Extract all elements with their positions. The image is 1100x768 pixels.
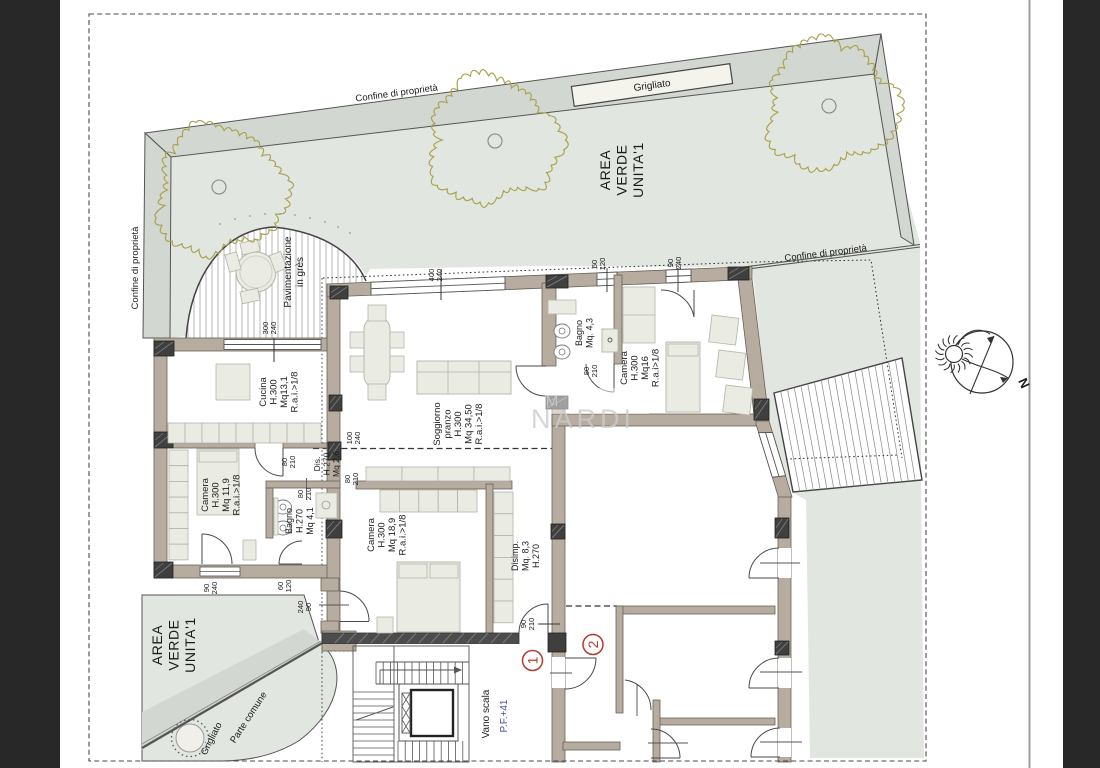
svg-text:VERDE: VERDE bbox=[166, 619, 182, 670]
svg-text:H.270: H.270 bbox=[295, 509, 305, 533]
svg-text:AREA: AREA bbox=[597, 150, 613, 191]
svg-text:Camera: Camera bbox=[200, 477, 211, 512]
svg-text:240: 240 bbox=[269, 322, 278, 335]
svg-text:210: 210 bbox=[527, 618, 536, 631]
svg-text:UNITA'1: UNITA'1 bbox=[630, 142, 646, 198]
svg-text:H.270: H.270 bbox=[531, 544, 541, 568]
svg-text:240: 240 bbox=[674, 257, 683, 270]
svg-text:Bagno: Bagno bbox=[284, 508, 294, 534]
svg-text:Camera: Camera bbox=[366, 517, 377, 552]
svg-text:AREA: AREA bbox=[149, 625, 165, 666]
svg-text:240: 240 bbox=[353, 432, 362, 445]
svg-text:1: 1 bbox=[525, 656, 541, 664]
svg-text:120: 120 bbox=[284, 580, 293, 593]
svg-text:H.270: H.270 bbox=[322, 452, 332, 475]
svg-text:H.300: H.300 bbox=[377, 522, 388, 547]
svg-text:R.a.i.>1/8: R.a.i.>1/8 bbox=[398, 515, 409, 556]
svg-text:Mq13,1: Mq13,1 bbox=[279, 376, 290, 408]
svg-text:R.a.i.>1/8: R.a.i.>1/8 bbox=[232, 475, 243, 516]
svg-text:90: 90 bbox=[304, 603, 313, 611]
svg-text:210: 210 bbox=[288, 456, 297, 469]
svg-text:Pavimentazione: Pavimentazione bbox=[283, 236, 294, 308]
svg-text:UNITA'1: UNITA'1 bbox=[182, 617, 198, 673]
svg-text:Cucina: Cucina bbox=[258, 377, 269, 407]
svg-text:H.300: H.300 bbox=[211, 482, 222, 507]
svg-text:Mq 11,9: Mq 11,9 bbox=[221, 478, 232, 512]
svg-text:R.a.i>1/8: R.a.i>1/8 bbox=[651, 349, 662, 387]
svg-text:120: 120 bbox=[598, 258, 607, 271]
svg-text:H.300: H.300 bbox=[453, 411, 464, 436]
svg-text:R.a.i.>1/8: R.a.i.>1/8 bbox=[290, 372, 301, 413]
svg-text:Mq. 4,3: Mq. 4,3 bbox=[585, 318, 595, 348]
svg-text:in grès: in grès bbox=[295, 257, 306, 287]
svg-text:210: 210 bbox=[304, 488, 313, 501]
svg-text:Camera: Camera bbox=[619, 350, 630, 385]
svg-text:Mq 4,1: Mq 4,1 bbox=[305, 507, 315, 535]
svg-text:2: 2 bbox=[585, 640, 601, 648]
svg-text:P.F.+41: P.F.+41 bbox=[499, 699, 510, 732]
svg-text:Mq16: Mq16 bbox=[640, 356, 651, 380]
svg-text:Soggiorno: Soggiorno bbox=[432, 402, 443, 445]
svg-text:Confine di proprietà: Confine di proprietà bbox=[130, 226, 141, 310]
svg-text:VERDE: VERDE bbox=[614, 144, 630, 195]
svg-text:210: 210 bbox=[590, 365, 599, 378]
svg-text:Vano scala: Vano scala bbox=[481, 689, 492, 738]
svg-text:R.a.i.>1/8: R.a.i.>1/8 bbox=[474, 404, 485, 445]
svg-text:240: 240 bbox=[210, 582, 219, 595]
svg-text:pranzo: pranzo bbox=[443, 409, 454, 438]
svg-text:H.300: H.300 bbox=[630, 355, 641, 380]
svg-text:Mq. 8,3: Mq. 8,3 bbox=[521, 541, 531, 571]
svg-text:Bagno: Bagno bbox=[574, 320, 584, 346]
svg-text:Mq 18,9: Mq 18,9 bbox=[387, 518, 398, 552]
svg-text:Disimp.: Disimp. bbox=[510, 541, 520, 571]
svg-text:NARDI: NARDI bbox=[531, 404, 635, 434]
svg-text:210: 210 bbox=[351, 473, 360, 486]
svg-text:240: 240 bbox=[435, 269, 444, 282]
svg-text:Mq 34,50: Mq 34,50 bbox=[464, 404, 475, 444]
svg-text:Mq 2,6: Mq 2,6 bbox=[331, 451, 341, 477]
svg-text:Dis.: Dis. bbox=[312, 457, 322, 472]
svg-text:H.300: H.300 bbox=[269, 379, 280, 404]
